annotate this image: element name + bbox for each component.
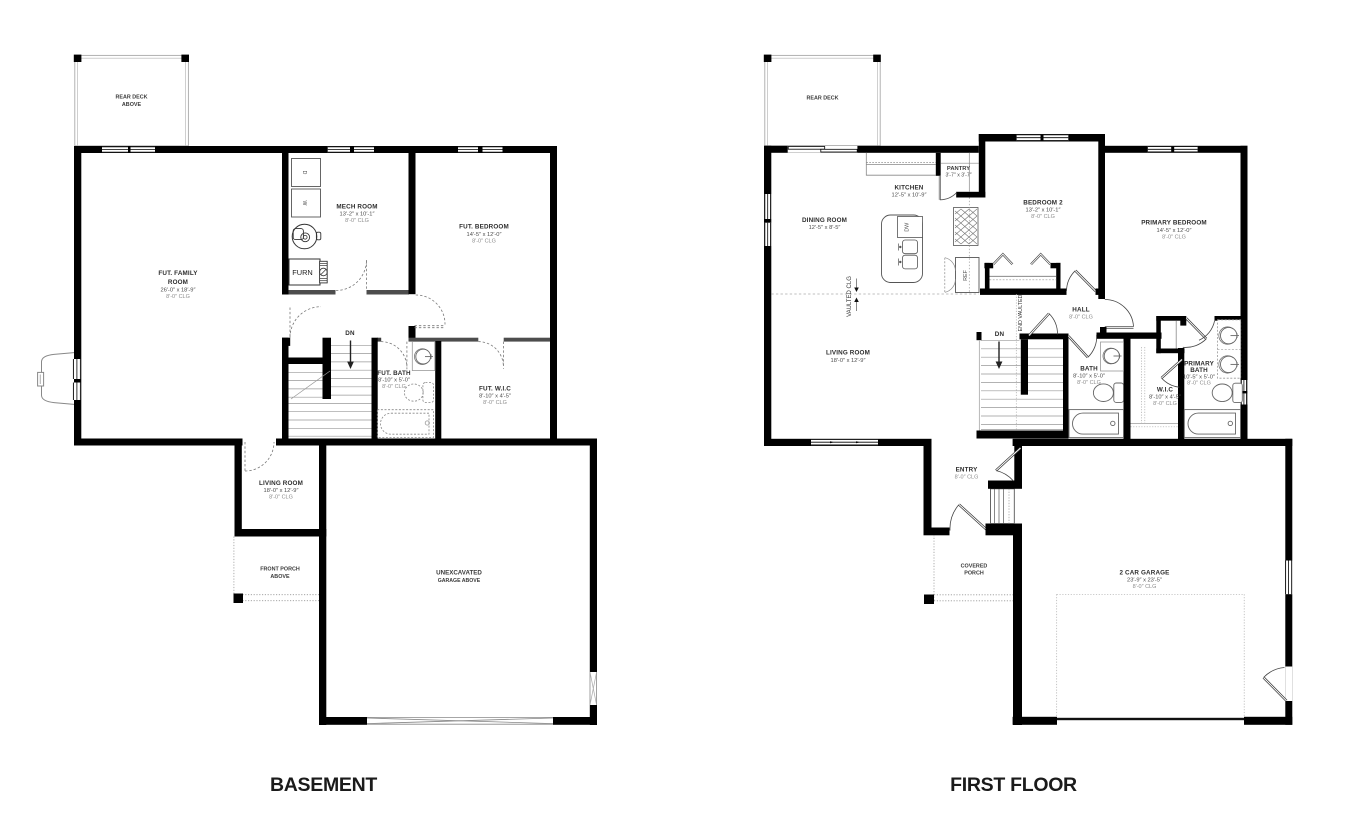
svg-text:FUT. BEDROOM: FUT. BEDROOM xyxy=(459,224,509,231)
svg-text:8′-0″ CLG: 8′-0″ CLG xyxy=(483,400,507,406)
svg-text:8′-0″ CLG: 8′-0″ CLG xyxy=(1153,401,1177,407)
svg-text:DN: DN xyxy=(995,331,1005,338)
svg-text:8′-0″ CLG: 8′-0″ CLG xyxy=(166,294,190,300)
svg-text:HALL: HALL xyxy=(1072,307,1089,314)
svg-text:18′-0″ x 12′-9″: 18′-0″ x 12′-9″ xyxy=(831,358,866,364)
svg-text:8′-10″ x 5′-0″: 8′-10″ x 5′-0″ xyxy=(378,378,410,384)
svg-text:13′-2″ x 10′-1″: 13′-2″ x 10′-1″ xyxy=(340,212,375,218)
svg-text:BATH: BATH xyxy=(1080,366,1098,373)
svg-text:KITCHEN: KITCHEN xyxy=(894,185,923,192)
svg-text:MECH ROOM: MECH ROOM xyxy=(336,204,377,211)
svg-text:3′-7″ x 3′-7″: 3′-7″ x 3′-7″ xyxy=(945,173,971,179)
svg-text:8′-0″ CLG: 8′-0″ CLG xyxy=(955,475,979,481)
svg-text:12′-5″ x 8′-5″: 12′-5″ x 8′-5″ xyxy=(809,225,841,231)
svg-text:VAULTED CLG: VAULTED CLG xyxy=(847,276,853,317)
svg-text:8′-0″ CLG: 8′-0″ CLG xyxy=(1187,380,1211,386)
svg-text:8′-0″ CLG: 8′-0″ CLG xyxy=(1077,380,1101,386)
svg-text:REF: REF xyxy=(963,269,969,280)
svg-text:DINING ROOM: DINING ROOM xyxy=(802,217,847,224)
svg-text:GARAGE ABOVE: GARAGE ABOVE xyxy=(438,578,481,584)
svg-text:8′-0″ CLG: 8′-0″ CLG xyxy=(1133,584,1157,590)
svg-text:END VAULTED: END VAULTED xyxy=(1018,294,1024,331)
svg-text:ABOVE: ABOVE xyxy=(270,574,290,580)
svg-text:8′-10″ x 4′-5″: 8′-10″ x 4′-5″ xyxy=(479,393,511,399)
svg-text:FUT. BATH: FUT. BATH xyxy=(377,370,411,377)
svg-text:LIVING ROOM: LIVING ROOM xyxy=(259,480,303,487)
svg-text:8′-0″ CLG: 8′-0″ CLG xyxy=(1069,315,1093,321)
svg-text:DW: DW xyxy=(905,222,911,232)
svg-text:D: D xyxy=(301,171,307,175)
svg-text:FIRST FLOOR: FIRST FLOOR xyxy=(950,774,1077,796)
svg-text:8′-0″ CLG: 8′-0″ CLG xyxy=(1031,214,1055,220)
svg-text:8′-0″ CLG: 8′-0″ CLG xyxy=(345,218,369,224)
svg-text:FRONT PORCH: FRONT PORCH xyxy=(260,567,300,573)
svg-text:18′-0″ x 12′-9″: 18′-0″ x 12′-9″ xyxy=(264,488,299,494)
svg-text:ENTRY: ENTRY xyxy=(956,467,979,474)
svg-text:8′-10″ x 5′-0″: 8′-10″ x 5′-0″ xyxy=(1073,373,1105,379)
svg-text:REAR DECK: REAR DECK xyxy=(115,95,147,101)
svg-text:ABOVE: ABOVE xyxy=(122,102,142,108)
svg-text:LIVING ROOM: LIVING ROOM xyxy=(826,350,870,357)
svg-text:8′-10″ x 4′-5″: 8′-10″ x 4′-5″ xyxy=(1149,394,1181,400)
svg-text:8′-0″ CLG: 8′-0″ CLG xyxy=(472,238,496,244)
svg-text:ROOM: ROOM xyxy=(168,279,188,286)
svg-text:W.I.C: W.I.C xyxy=(1157,387,1173,394)
svg-text:BEDROOM 2: BEDROOM 2 xyxy=(1023,200,1063,207)
svg-text:FUT. W.I.C: FUT. W.I.C xyxy=(479,386,511,393)
svg-text:14′-5″ x 12′-0″: 14′-5″ x 12′-0″ xyxy=(1157,228,1192,234)
svg-text:BASEMENT: BASEMENT xyxy=(270,774,377,796)
svg-text:PRIMARY BEDROOM: PRIMARY BEDROOM xyxy=(1141,220,1207,227)
svg-text:BATH: BATH xyxy=(1190,367,1208,374)
svg-text:8′-0″ CLG: 8′-0″ CLG xyxy=(269,495,293,501)
svg-text:26′-0″ x 18′-9″: 26′-0″ x 18′-9″ xyxy=(161,288,196,294)
svg-text:COVERED: COVERED xyxy=(961,564,988,570)
svg-text:FURN: FURN xyxy=(292,268,313,277)
svg-text:12′-5″ x 10′-9″: 12′-5″ x 10′-9″ xyxy=(892,192,927,198)
svg-text:W: W xyxy=(301,201,307,206)
svg-text:UNEXCAVATED: UNEXCAVATED xyxy=(436,570,482,577)
svg-text:REAR DECK: REAR DECK xyxy=(806,96,838,102)
svg-text:PORCH: PORCH xyxy=(964,571,984,577)
svg-text:8′-0″ CLG: 8′-0″ CLG xyxy=(1162,234,1186,240)
svg-text:FUT. FAMILY: FUT. FAMILY xyxy=(158,270,198,277)
svg-text:2 CAR GARAGE: 2 CAR GARAGE xyxy=(1119,570,1169,577)
svg-text:DN: DN xyxy=(345,330,355,337)
svg-text:14′-5″ x 12′-0″: 14′-5″ x 12′-0″ xyxy=(467,232,502,238)
svg-text:23′-9″ x 23′-5″: 23′-9″ x 23′-5″ xyxy=(1127,577,1162,583)
svg-text:13′-2″ x 10′-1″: 13′-2″ x 10′-1″ xyxy=(1026,208,1061,214)
svg-text:8′-0″ CLG: 8′-0″ CLG xyxy=(382,384,406,390)
svg-text:PANTRY: PANTRY xyxy=(947,166,970,172)
